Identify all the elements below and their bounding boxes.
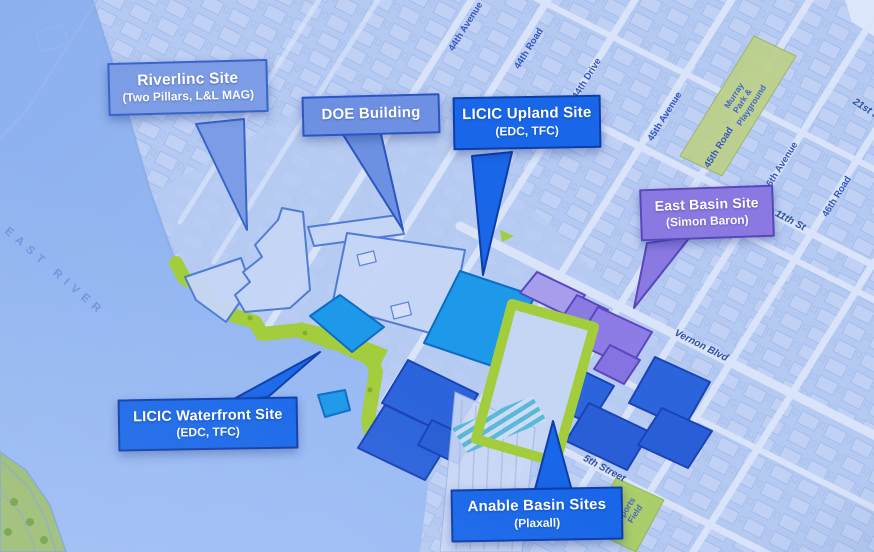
callout-subtitle: (Simon Baron): [646, 211, 768, 230]
callout-licic-waterfront-site: LICIC Waterfront Site (EDC, TFC): [118, 396, 299, 451]
callout-doe-building: DOE Building: [302, 93, 441, 136]
callout-riverlinc-site: Riverlinc Site (Two Pillars, L&L MAG): [107, 59, 268, 117]
callout-subtitle: (Two Pillars, L&L MAG): [114, 87, 262, 106]
projected-map-photo: EAST RIVER: [0, 0, 874, 552]
callout-licic-upland-site: LICIC Upland Site (EDC, TFC): [453, 95, 602, 150]
callout-subtitle: (EDC, TFC): [459, 123, 595, 140]
callout-anable-basin-sites: Anable Basin Sites (Plaxall): [451, 487, 624, 543]
callout-subtitle: (EDC, TFC): [124, 424, 292, 442]
callout-east-basin-site: East Basin Site (Simon Baron): [639, 185, 775, 241]
callout-subtitle: (Plaxall): [457, 514, 617, 532]
callout-title: DOE Building: [308, 103, 434, 125]
callout-title: LICIC Upland Site: [459, 104, 595, 125]
